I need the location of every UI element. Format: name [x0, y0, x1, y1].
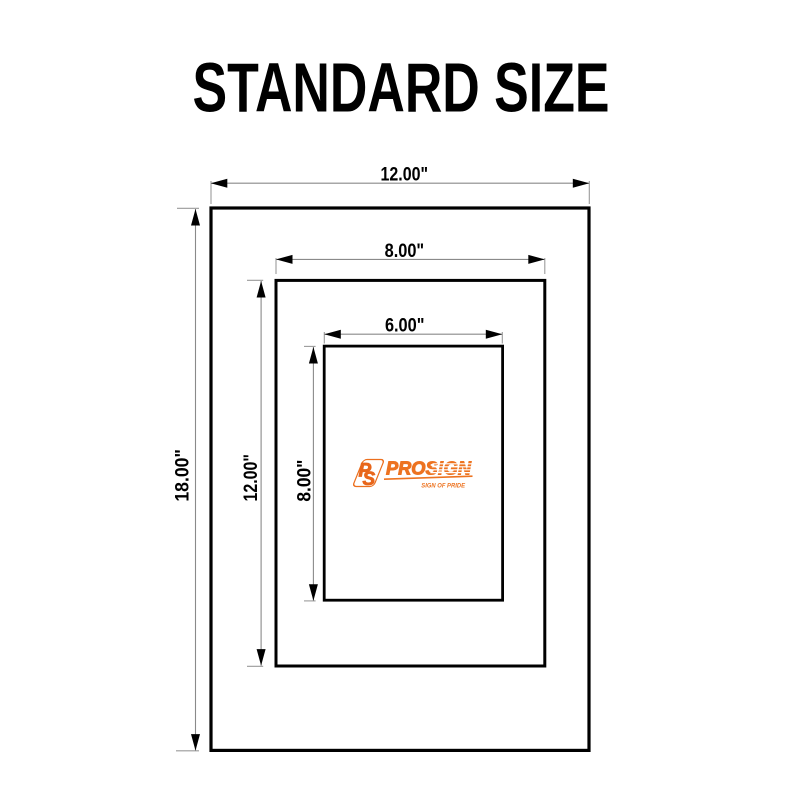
svg-text:8.00": 8.00" — [385, 241, 425, 262]
svg-text:12.00": 12.00" — [381, 164, 429, 185]
svg-text:STANDARD SIZE: STANDARD SIZE — [193, 49, 610, 127]
svg-text:18.00": 18.00" — [173, 449, 194, 502]
svg-text:SIGN OF PRIDE: SIGN OF PRIDE — [421, 483, 465, 490]
svg-text:S: S — [363, 469, 376, 490]
svg-text:12.00": 12.00" — [241, 454, 262, 502]
svg-text:8.00": 8.00" — [295, 460, 316, 502]
svg-text:PROS!GN: PROS!GN — [386, 458, 472, 479]
svg-text:6.00": 6.00" — [385, 315, 425, 336]
